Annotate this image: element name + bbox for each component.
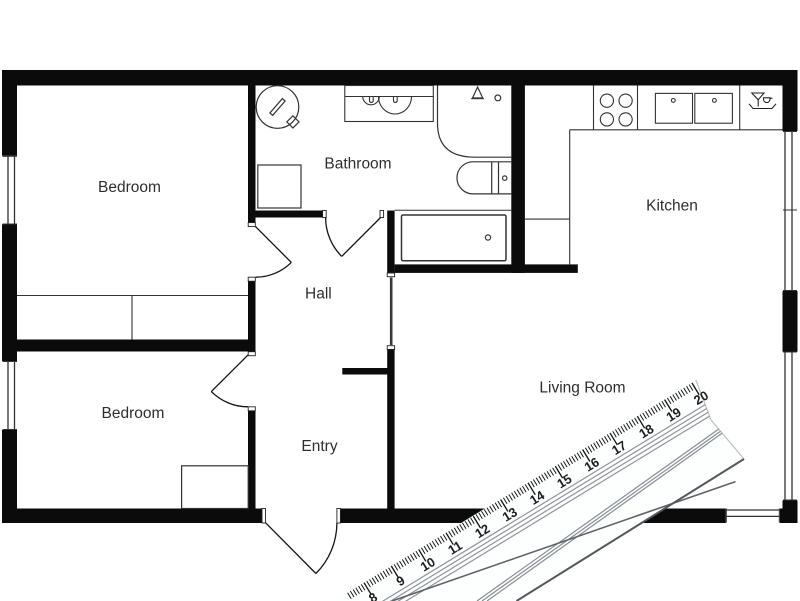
svg-text:Bathroom: Bathroom [324,156,391,173]
svg-text:Bedroom: Bedroom [98,179,161,196]
svg-text:Kitchen: Kitchen [646,197,698,214]
svg-text:Living Room: Living Room [539,380,625,397]
svg-text:Hall: Hall [305,286,332,303]
svg-text:Entry: Entry [301,438,337,455]
svg-text:Bedroom: Bedroom [102,405,165,422]
